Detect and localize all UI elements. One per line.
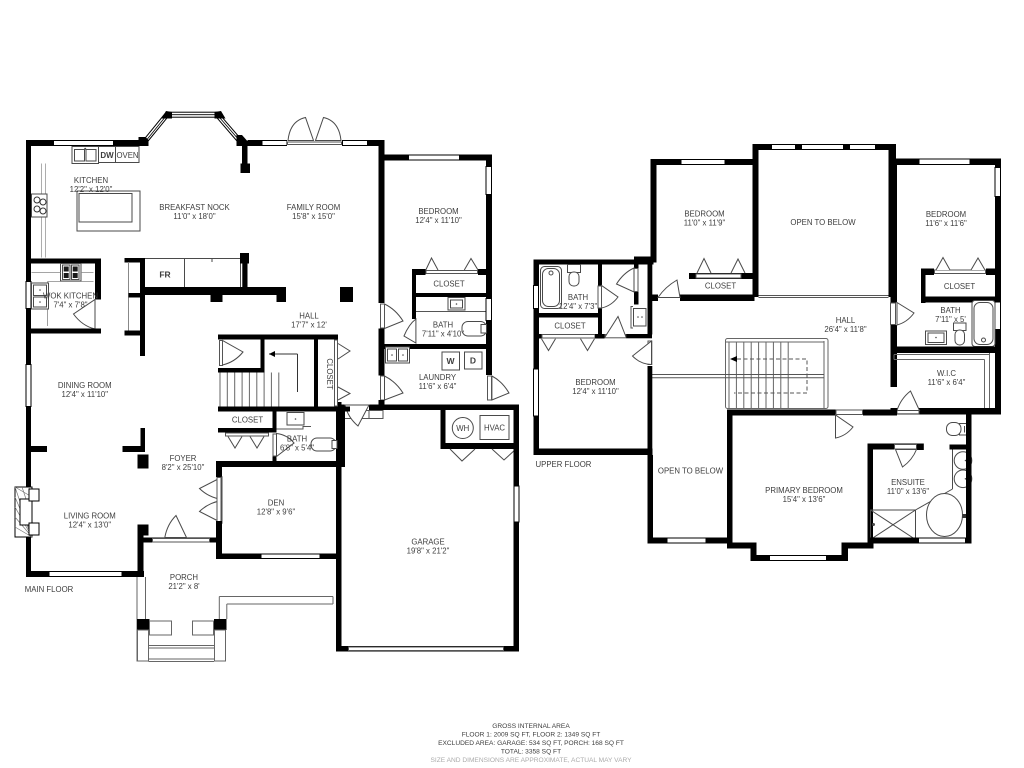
svg-text:HALL: HALL: [299, 312, 319, 321]
svg-text:12'2" x 12'0": 12'2" x 12'0": [70, 185, 113, 194]
svg-text:11'6" x 6'4": 11'6" x 6'4": [928, 378, 966, 387]
svg-text:WOK KITCHEN: WOK KITCHEN: [43, 292, 98, 301]
svg-text:21'2" x 8': 21'2" x 8': [168, 582, 200, 591]
svg-text:TOTAL: 3358 SQ FT: TOTAL: 3358 SQ FT: [501, 749, 561, 756]
svg-text:12'4" x 13'0": 12'4" x 13'0": [68, 521, 111, 530]
svg-text:11'6" x 6'4": 11'6" x 6'4": [419, 382, 457, 391]
svg-text:7'11" x 5': 7'11" x 5': [935, 315, 966, 324]
svg-text:BEDROOM: BEDROOM: [684, 210, 724, 219]
svg-text:BEDROOM: BEDROOM: [926, 210, 966, 219]
svg-text:GROSS INTERNAL AREA: GROSS INTERNAL AREA: [492, 723, 570, 730]
svg-text:MAIN FLOOR: MAIN FLOOR: [25, 585, 74, 594]
svg-text:FR: FR: [159, 270, 170, 280]
svg-text:15'4" x 13'6": 15'4" x 13'6": [783, 495, 826, 504]
svg-text:6'8" x 5'4": 6'8" x 5'4": [280, 444, 314, 453]
svg-text:W: W: [446, 356, 455, 366]
svg-text:12'4" x 11'10": 12'4" x 11'10": [61, 390, 108, 399]
svg-text:OPEN TO BELOW: OPEN TO BELOW: [658, 467, 724, 476]
svg-text:KITCHEN: KITCHEN: [74, 176, 108, 185]
svg-text:15'8" x 15'0": 15'8" x 15'0": [292, 212, 335, 221]
svg-text:12'4" x 7'3": 12'4" x 7'3": [559, 302, 598, 311]
svg-text:FLOOR 1: 2009 SQ FT, FLOOR 2:: FLOOR 1: 2009 SQ FT, FLOOR 2: 1349 SQ FT: [462, 732, 601, 739]
svg-text:D: D: [470, 356, 476, 366]
svg-text:CLOSET: CLOSET: [944, 282, 975, 291]
svg-text:BATH: BATH: [433, 321, 453, 330]
svg-text:LIVING ROOM: LIVING ROOM: [64, 512, 116, 521]
svg-text:BATH: BATH: [940, 306, 960, 315]
svg-text:BREAKFAST NOCK: BREAKFAST NOCK: [159, 203, 230, 212]
svg-text:7'4" x 7'8": 7'4" x 7'8": [53, 301, 87, 310]
svg-text:11'0" x 11'9": 11'0" x 11'9": [684, 219, 726, 228]
svg-text:11'0" x 13'6": 11'0" x 13'6": [887, 487, 929, 496]
svg-text:PORCH: PORCH: [170, 573, 198, 582]
svg-text:DINING ROOM: DINING ROOM: [58, 381, 112, 390]
svg-text:DW: DW: [100, 151, 114, 160]
svg-text:ENSUITE: ENSUITE: [891, 478, 925, 487]
svg-text:12'8" x 9'6": 12'8" x 9'6": [257, 508, 296, 517]
svg-text:HVAC: HVAC: [484, 424, 505, 433]
svg-text:7'11" x 4'10": 7'11" x 4'10": [422, 330, 464, 339]
svg-text:HALL: HALL: [836, 316, 856, 325]
svg-text:WH: WH: [456, 424, 469, 433]
svg-text:12'4" x 11'10": 12'4" x 11'10": [572, 387, 619, 396]
svg-text:8'2" x 25'10": 8'2" x 25'10": [162, 463, 205, 472]
svg-text:LAUNDRY: LAUNDRY: [419, 373, 457, 382]
svg-text:BATH: BATH: [287, 435, 307, 444]
svg-text:OVEN: OVEN: [116, 151, 138, 160]
svg-text:19'8" x 21'2": 19'8" x 21'2": [407, 547, 450, 556]
svg-text:CLOSET: CLOSET: [705, 282, 736, 291]
svg-text:FOYER: FOYER: [170, 454, 197, 463]
svg-text:17'7" x 12': 17'7" x 12': [291, 321, 327, 330]
svg-text:DEN: DEN: [268, 499, 284, 508]
svg-text:BEDROOM: BEDROOM: [575, 378, 615, 387]
svg-text:CLOSET: CLOSET: [232, 416, 263, 425]
svg-text:CLOSET: CLOSET: [433, 280, 464, 289]
svg-text:26'4" x 11'8": 26'4" x 11'8": [824, 325, 866, 334]
svg-text:GARAGE: GARAGE: [411, 538, 444, 547]
svg-text:SIZE AND DIMENSIONS ARE APPROX: SIZE AND DIMENSIONS ARE APPROXIMATE, ACT…: [430, 757, 632, 764]
svg-text:12'4" x 11'10": 12'4" x 11'10": [415, 216, 462, 225]
svg-text:CLOSET: CLOSET: [554, 322, 585, 331]
svg-text:BATH: BATH: [568, 293, 588, 302]
svg-text:CLOSET: CLOSET: [325, 358, 334, 389]
svg-text:W.I.C: W.I.C: [937, 369, 956, 378]
svg-text:FAMILY ROOM: FAMILY ROOM: [287, 203, 340, 212]
svg-text:UPPER FLOOR: UPPER FLOOR: [536, 460, 592, 469]
svg-text:PRIMARY BEDROOM: PRIMARY BEDROOM: [765, 486, 843, 495]
svg-text:EXCLUDED AREA: GARAGE: 534 SQ: EXCLUDED AREA: GARAGE: 534 SQ FT, PORCH:…: [438, 740, 624, 747]
svg-text:11'0" x 18'0": 11'0" x 18'0": [173, 212, 215, 221]
svg-text:BEDROOM: BEDROOM: [418, 207, 458, 216]
svg-text:OPEN TO BELOW: OPEN TO BELOW: [790, 218, 856, 227]
svg-text:11'6" x 11'6": 11'6" x 11'6": [925, 219, 967, 228]
